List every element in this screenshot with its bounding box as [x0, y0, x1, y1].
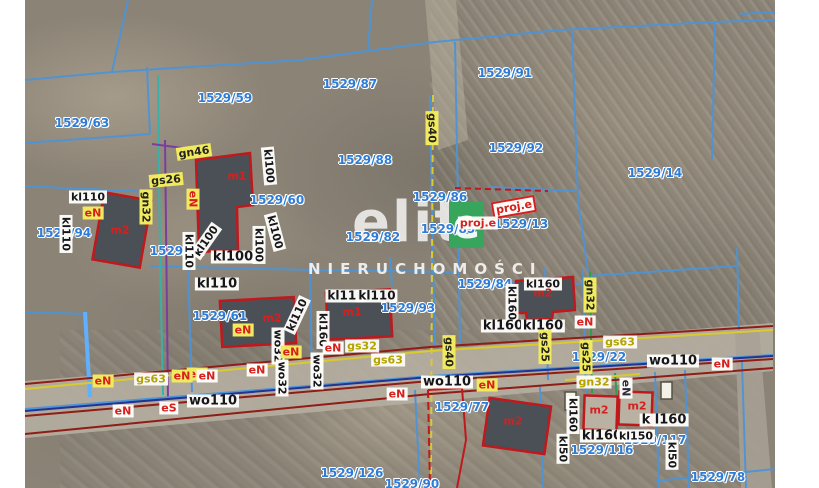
utility-label: eN — [93, 375, 114, 388]
utility-label: gs40 — [426, 111, 439, 145]
utility-label: kl50 — [557, 434, 570, 464]
utility-label: eN — [113, 405, 134, 418]
building-label: m1 — [227, 170, 246, 183]
building-label: m2 — [627, 400, 646, 413]
parcel-number-label: 1529/13 — [494, 217, 548, 231]
utility-label: gs25 — [539, 330, 552, 364]
utility-label: kl110 — [195, 278, 239, 291]
parcel-number-label: 1529/14 — [628, 166, 682, 180]
utility-label: gs32 — [345, 340, 379, 353]
utility-label: kl150 — [617, 430, 655, 443]
utility-label: kl100 — [211, 251, 255, 264]
building-label: m2 — [503, 415, 522, 428]
utility-label: proj.e — [458, 217, 498, 230]
parcel-number-label: 1529/126 — [321, 466, 384, 480]
utility-label: wo32 — [311, 352, 324, 389]
utility-label: gs63 — [371, 354, 405, 367]
parcel-number-label: 1529/92 — [489, 141, 543, 155]
utility-label: wo110 — [187, 395, 239, 408]
parcel-number-label: 1529/61 — [193, 309, 247, 323]
utility-label: k l160 — [640, 414, 689, 427]
utility-label: kl160 — [567, 396, 580, 434]
utility-label: eN — [575, 316, 596, 329]
utility-label: eN — [247, 364, 268, 377]
building-label: m2 — [533, 287, 552, 300]
utility-label: eN — [477, 379, 498, 392]
building-label: m2 — [262, 312, 281, 325]
utility-label: eS — [159, 402, 178, 415]
parcel-number-label: 1529/93 — [381, 301, 435, 315]
cadastral-map[interactable]: elit e NIERUCHOMOŚCI 1529/631529/591529/… — [0, 0, 819, 488]
watermark-subtitle: NIERUCHOMOŚCI — [308, 260, 543, 278]
utility-label: eN — [197, 370, 218, 383]
utility-label: wo32 — [276, 359, 289, 396]
building-label: m2 — [589, 404, 608, 417]
parcel-number-label: 1529/86 — [413, 190, 467, 204]
utility-label: eN — [187, 189, 200, 210]
utility-label: kl160 — [506, 284, 519, 322]
utility-label: eN — [172, 370, 193, 383]
utility-label: kl110 — [60, 215, 73, 253]
utility-label: wo110 — [647, 355, 699, 368]
utility-label: eN — [620, 378, 633, 399]
parcel-number-label: 1529/87 — [323, 77, 377, 91]
utility-label: kl50 — [666, 440, 679, 470]
utility-label: kl160 — [481, 320, 525, 333]
utility-label: gn32 — [584, 277, 597, 312]
parcel-number-label: 1529/60 — [250, 193, 304, 207]
utility-label: kl110 — [356, 290, 397, 303]
parcel-number-label: 1529/82 — [346, 230, 400, 244]
utility-label: eN — [323, 342, 344, 355]
teal-utility-line — [158, 75, 163, 395]
utility-label: gs40 — [443, 335, 456, 369]
building-label: m2 — [110, 224, 129, 237]
parcel-number-label: 1529/59 — [198, 91, 252, 105]
utility-label: eN — [712, 358, 733, 371]
parcel-number-label: 1529/63 — [55, 116, 109, 130]
utility-label: gn32 — [140, 189, 153, 224]
utility-label: wo110 — [421, 376, 473, 389]
utility-label: gs63 — [134, 373, 168, 386]
utility-label: eN — [83, 207, 104, 220]
parcel-number-label: 1529/84 — [458, 277, 512, 291]
utility-label: eN — [387, 388, 408, 401]
utility-label: eN — [233, 324, 254, 337]
utility-label: eN — [281, 346, 302, 359]
utility-label: gs63 — [603, 336, 637, 349]
parcel-number-label: 1529/90 — [385, 477, 439, 488]
utility-label: gs25 — [580, 340, 593, 374]
parcel-number-label: 1529/88 — [338, 153, 392, 167]
utility-label: kl100 — [253, 226, 266, 264]
parcel-number-label: 1529/91 — [478, 66, 532, 80]
utility-label: kl110 — [183, 232, 196, 270]
parcel-number-label: 1529/78 — [691, 470, 745, 484]
building-label: m1 — [342, 306, 361, 319]
utility-label: gn32 — [576, 376, 611, 389]
parcel-number-label: 1529/77 — [435, 400, 489, 414]
utility-label: kl110 — [69, 191, 107, 204]
